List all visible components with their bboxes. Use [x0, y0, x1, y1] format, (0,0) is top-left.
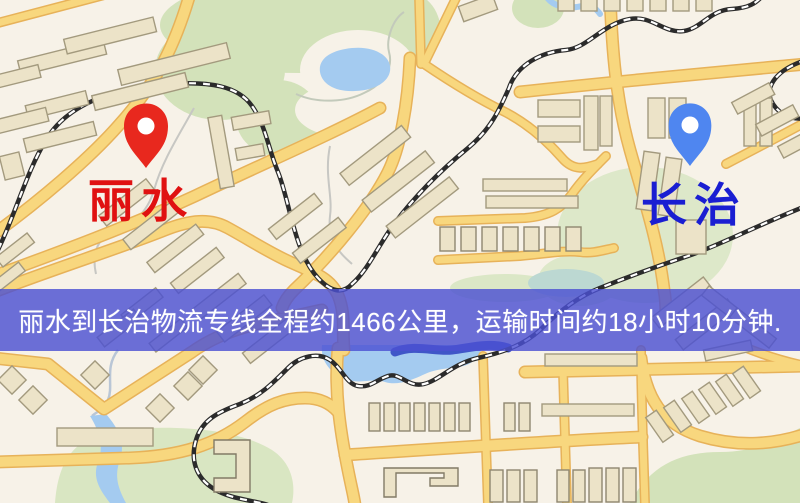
map-background: 丽水 长治 [0, 0, 800, 503]
origin-city-label: 丽水 [88, 175, 194, 227]
destination-city-label: 长治 [641, 179, 747, 231]
route-info-banner: 丽水到长治物流专线全程约1466公里，运输时间约18小时10分钟. [0, 289, 800, 351]
route-info-text: 丽水到长治物流专线全程约1466公里，运输时间约18小时10分钟. [18, 302, 781, 339]
logistics-route-map: 丽水 长治 丽水到长治物流专线全程约1466公里，运输时间约18小时10分钟. [0, 0, 800, 503]
